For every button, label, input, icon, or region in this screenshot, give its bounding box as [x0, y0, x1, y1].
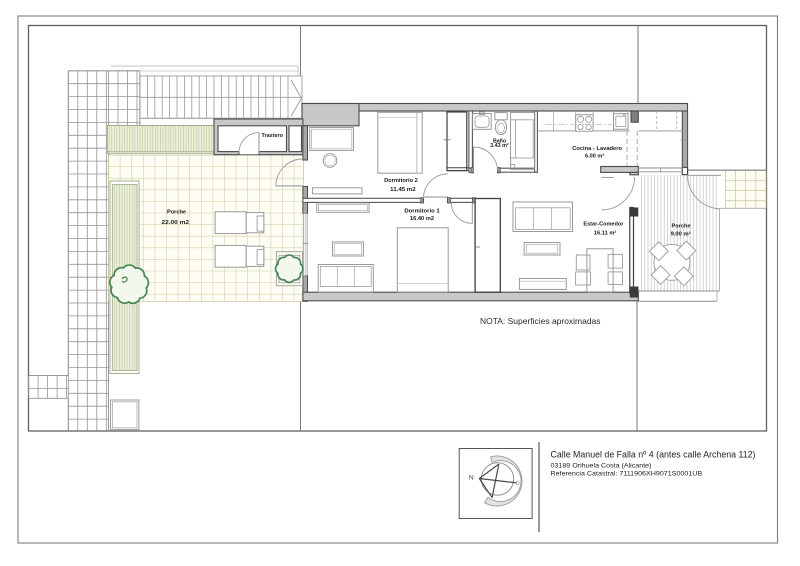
svg-text:Dormitorio 1: Dormitorio 1: [404, 208, 440, 214]
svg-text:Calle Manuel de Falla nº 4 (an: Calle Manuel de Falla nº 4 (antes calle …: [551, 449, 756, 459]
svg-text:Cocina - Lavadero: Cocina - Lavadero: [572, 146, 622, 152]
svg-text:Trastero: Trastero: [262, 133, 284, 139]
svg-text:11.45 m2: 11.45 m2: [390, 187, 415, 193]
svg-text:22.00 m2: 22.00 m2: [162, 220, 190, 226]
svg-text:N: N: [469, 474, 474, 481]
svg-text:9.00 m²: 9.00 m²: [671, 230, 691, 237]
svg-text:16.40 m2: 16.40 m2: [410, 216, 434, 222]
svg-text:3.43 m²: 3.43 m²: [490, 143, 509, 149]
svg-text:Estar-Comedor: Estar-Comedor: [583, 221, 624, 227]
svg-text:Referencia Catastral: 7111906X: Referencia Catastral: 7111906XH9071S0001…: [551, 471, 703, 478]
svg-text:Dormitorio 2: Dormitorio 2: [384, 178, 418, 184]
svg-text:6.00 m²: 6.00 m²: [585, 153, 604, 160]
svg-text:03189 Orihuela Costa (Alicante: 03189 Orihuela Costa (Alicante): [551, 462, 652, 469]
svg-text:Porche: Porche: [672, 223, 692, 229]
svg-text:NOTA: Superficies aproximadas: NOTA: Superficies aproximadas: [480, 317, 601, 326]
svg-text:Porche: Porche: [167, 210, 187, 216]
svg-text:16.11 m²: 16.11 m²: [594, 230, 616, 237]
